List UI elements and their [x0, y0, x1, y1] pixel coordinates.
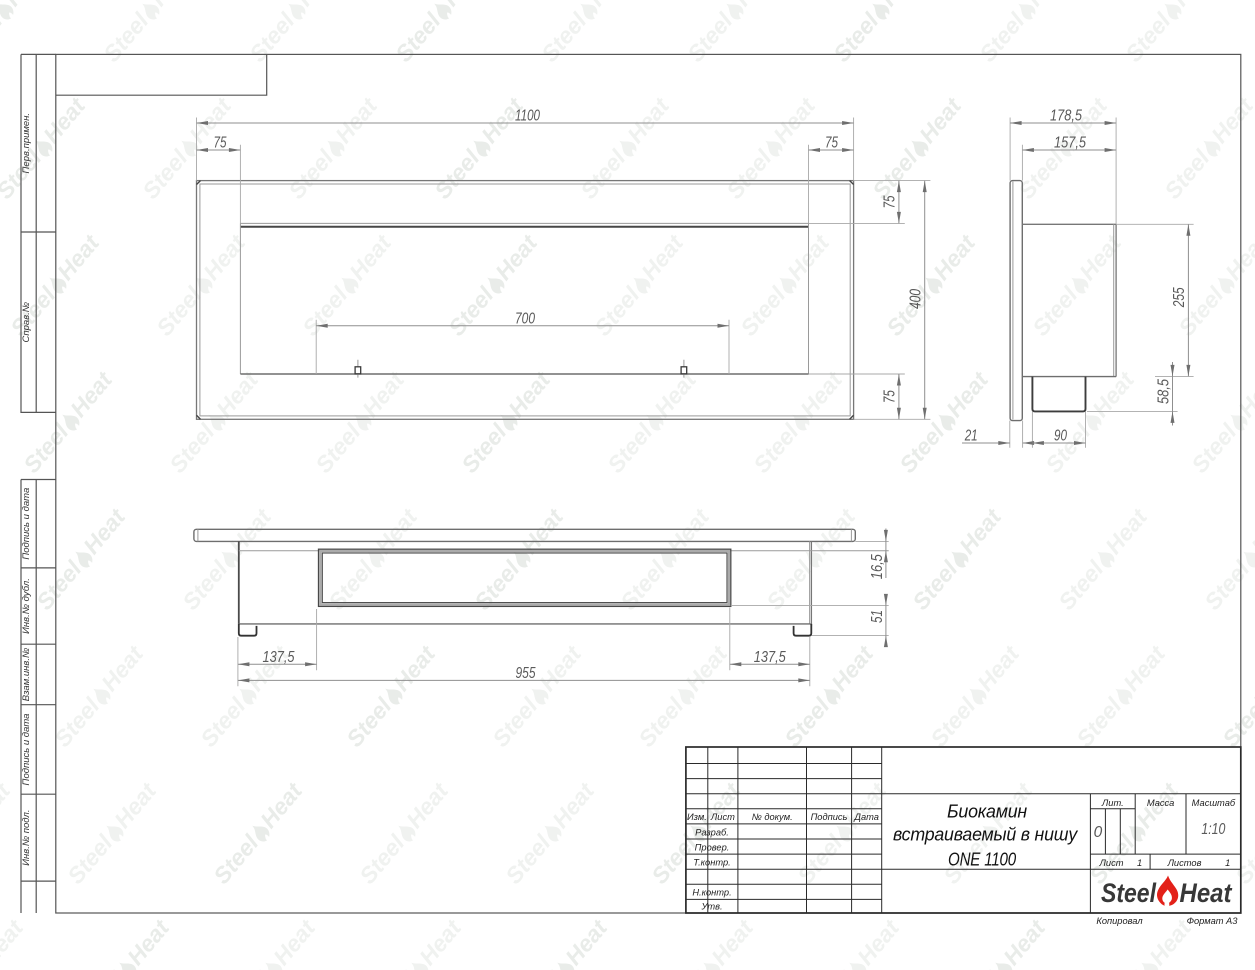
svg-text:Разраб.: Разраб. [695, 828, 729, 838]
svg-text:75: 75 [825, 135, 838, 152]
svg-text:157,5: 157,5 [1054, 135, 1086, 152]
svg-text:Провер.: Провер. [695, 843, 730, 853]
svg-text:Справ.№: Справ.№ [21, 302, 32, 343]
svg-text:Подпись и дата: Подпись и дата [21, 714, 32, 786]
svg-text:Подпись: Подпись [811, 812, 848, 822]
svg-text:Н.контр.: Н.контр. [692, 887, 731, 897]
svg-text:137,5: 137,5 [263, 649, 295, 666]
svg-text:№ докум.: № докум. [752, 812, 793, 822]
svg-text:Биокамин: Биокамин [947, 802, 1027, 822]
svg-text:ONE 1100: ONE 1100 [948, 849, 1016, 869]
svg-text:Копировал: Копировал [1096, 916, 1143, 926]
svg-text:75: 75 [882, 390, 899, 403]
svg-text:Перв.примен.: Перв.примен. [21, 113, 32, 174]
svg-text:21: 21 [964, 428, 978, 445]
svg-text:Утв.: Утв. [700, 902, 722, 912]
svg-text:Лит.: Лит. [1101, 798, 1124, 808]
svg-text:Steel: Steel [1101, 878, 1156, 908]
svg-text:75: 75 [882, 195, 899, 208]
svg-text:51: 51 [869, 610, 886, 623]
svg-text:16,5: 16,5 [869, 554, 886, 579]
svg-text:Взам.инв.№: Взам.инв.№ [21, 648, 32, 701]
svg-text:400: 400 [908, 289, 925, 309]
svg-text:Лист: Лист [710, 812, 735, 822]
svg-text:Изм.: Изм. [687, 812, 707, 822]
svg-text:255: 255 [1171, 287, 1188, 308]
svg-text:Масштаб: Масштаб [1192, 798, 1236, 808]
svg-text:137,5: 137,5 [754, 649, 786, 666]
svg-text:Подпись и дата: Подпись и дата [21, 488, 32, 560]
svg-text:0: 0 [1094, 824, 1103, 841]
svg-text:90: 90 [1054, 428, 1067, 445]
svg-text:Инв.№ дубл.: Инв.№ дубл. [21, 578, 32, 634]
svg-text:Инв.№ подл.: Инв.№ подл. [21, 809, 32, 865]
svg-text:1: 1 [1225, 858, 1230, 868]
svg-text:Heat: Heat [1180, 878, 1233, 908]
svg-text:1100: 1100 [515, 108, 540, 125]
svg-text:Лист: Лист [1099, 858, 1124, 868]
svg-text:Дата: Дата [853, 812, 879, 822]
svg-text:700: 700 [515, 310, 535, 327]
svg-text:Листов: Листов [1167, 858, 1202, 868]
svg-text:Масса: Масса [1147, 798, 1175, 808]
svg-text:1:10: 1:10 [1201, 821, 1225, 838]
svg-text:178,5: 178,5 [1050, 108, 1082, 125]
svg-text:58,5: 58,5 [1156, 379, 1173, 404]
svg-text:Формат А3: Формат А3 [1187, 916, 1239, 926]
svg-text:Т.контр.: Т.контр. [693, 858, 731, 868]
svg-text:встраиваемый в нишу: встраиваемый в нишу [893, 825, 1079, 845]
svg-text:955: 955 [516, 665, 536, 682]
svg-text:1: 1 [1137, 858, 1142, 868]
svg-text:75: 75 [214, 135, 227, 152]
